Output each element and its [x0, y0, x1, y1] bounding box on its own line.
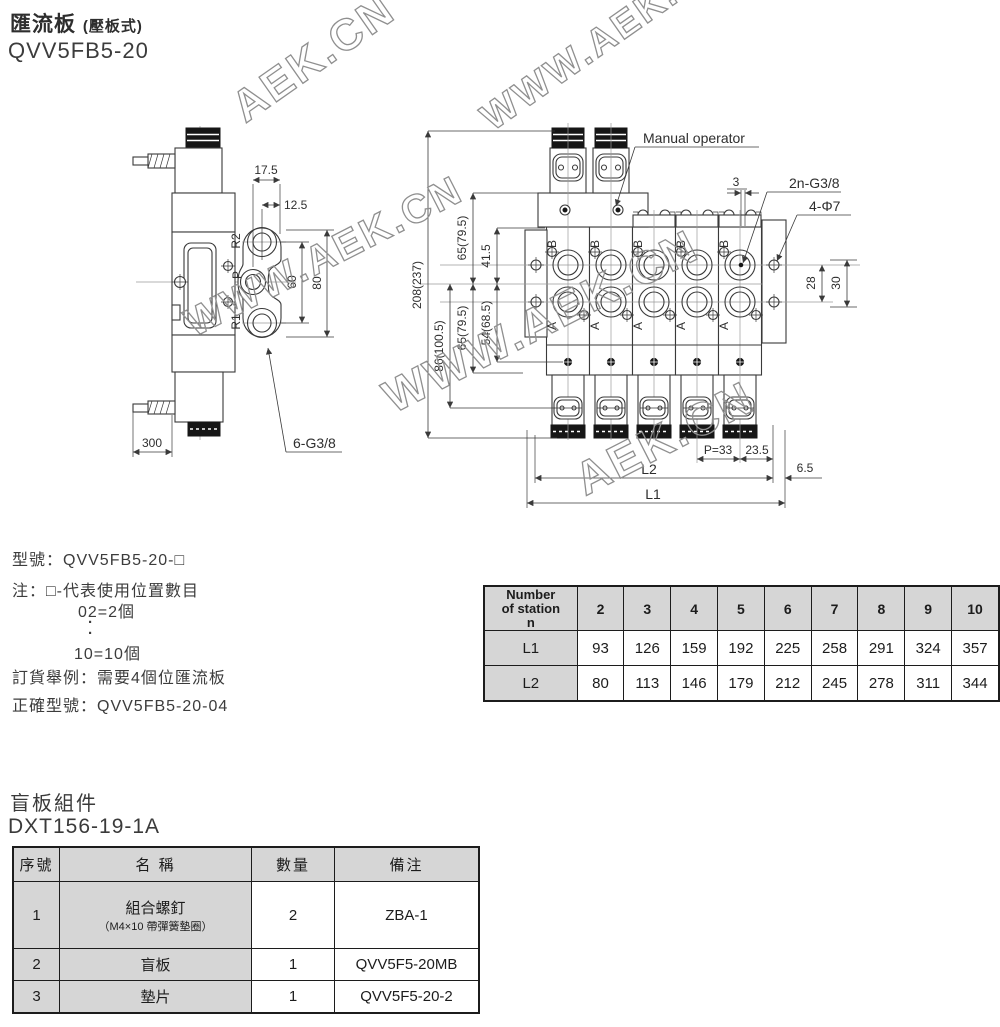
dim-label-300: 300: [142, 436, 162, 450]
pilot-mount-plate: [538, 193, 648, 227]
callout-6g38: 6-G3/8: [293, 435, 336, 451]
page-title: 匯流板 (壓板式): [10, 8, 143, 38]
l1-value: 159: [671, 631, 718, 666]
port-label-a: A: [631, 322, 645, 330]
top-lead-pin: [133, 157, 148, 165]
l2-value: 80: [577, 666, 624, 702]
leader-6g38: [268, 348, 286, 452]
lower-lead-connector: [148, 401, 175, 414]
part-remark: QVV5F5-20MB: [335, 949, 480, 981]
body-slot-outer: [184, 243, 216, 328]
dim-label-23-5: 23.5: [745, 443, 769, 457]
leader-dot: [739, 263, 743, 267]
col-header: 6: [764, 586, 811, 631]
port-label-r2: R2: [229, 233, 243, 249]
row-label: L2: [484, 666, 577, 702]
col-header: 10: [952, 586, 999, 631]
lower-lead-pin: [133, 404, 148, 412]
dim-label-65-top: 65(79.5): [455, 216, 469, 261]
col-header: 4: [671, 586, 718, 631]
datasheet-page: 匯流板 (壓板式) QVV5FB5-20: [0, 0, 1000, 1027]
dim-label-30: 30: [829, 276, 843, 290]
part-name: 組合螺釘 （M4×10 帶彈簧墊圈）: [60, 882, 252, 949]
ellipsis-dot: ·: [88, 628, 93, 639]
dim-label-3: 3: [733, 175, 740, 189]
port-label-a: A: [588, 322, 602, 330]
part-remark: ZBA-1: [335, 882, 480, 949]
dim-label-6-5: 6.5: [797, 461, 814, 475]
model-code-line: 型號：QVV5FB5-20-□: [12, 546, 185, 570]
l2-value: 344: [952, 666, 999, 702]
order-example: 訂貨舉例：需要4個位匯流板: [12, 664, 226, 688]
left-end-plate: [525, 230, 547, 337]
col-header: 3: [624, 586, 671, 631]
l2-value: 245: [811, 666, 858, 702]
col-header: 8: [858, 586, 905, 631]
dim-label-l1: L1: [645, 486, 661, 502]
correct-model: 正確型號：QVV5FB5-20-04: [12, 692, 228, 716]
table-row-l2: L2 80 113 146 179 212 245 278 311 344: [484, 666, 999, 702]
port-label-a: A: [545, 322, 559, 330]
port-label-r1: R1: [229, 314, 243, 330]
manual-operator-screw-dot: [616, 208, 620, 212]
l1-value: 192: [718, 631, 765, 666]
parts-row: 2 盲板 1 QVV5F5-20MB: [13, 949, 479, 981]
callout-manual-operator: Manual operator: [643, 130, 745, 146]
dim-label-12-5: 12.5: [284, 198, 308, 212]
port-label-a: A: [674, 322, 688, 330]
dim-label-28: 28: [804, 276, 818, 290]
part-name: 墊片: [60, 981, 252, 1014]
l1-value: 258: [811, 631, 858, 666]
parts-row: 1 組合螺釘 （M4×10 帶彈簧墊圈） 2 ZBA-1: [13, 882, 479, 949]
left-drawing-svg: R2 P R1 17.5 12.5 60 80 300 6-G3/8: [90, 100, 355, 470]
parts-table: 序號 名 稱 數量 備注 1 組合螺釘 （M4×10 帶彈簧墊圈） 2 ZBA-…: [12, 846, 480, 1014]
l1-value: 357: [952, 631, 999, 666]
port-label-a: A: [717, 322, 731, 330]
right-end-plate: [762, 220, 786, 343]
blank-plate-title: 盲板組件: [10, 787, 98, 816]
col-header: 7: [811, 586, 858, 631]
callout-4d7: 4-Φ7: [809, 198, 841, 214]
side-notch: [172, 305, 180, 320]
dim-label-80: 80: [310, 276, 324, 290]
col-header-remark: 備注: [335, 847, 480, 882]
part-qty: 2: [252, 882, 335, 949]
col-header-name: 名 稱: [60, 847, 252, 882]
option-max: 10=10個: [74, 640, 141, 664]
part-name-main: 組合螺釘: [60, 897, 251, 918]
page-title-main: 匯流板: [10, 13, 76, 36]
l1-value: 126: [624, 631, 671, 666]
dim-label-17-5: 17.5: [254, 163, 278, 177]
dim-label-86: 86(100.5): [432, 320, 446, 371]
part-no: 3: [13, 981, 60, 1014]
l2-value: 278: [858, 666, 905, 702]
dim-label-65-bot: 65(79.5): [455, 306, 469, 351]
l1-value: 291: [858, 631, 905, 666]
dim-label-60: 60: [285, 275, 299, 289]
l2-value: 311: [905, 666, 952, 702]
station-table: Number of station n 2 3 4 5 6 7 8 9 10 L…: [483, 585, 1000, 702]
top-lead-connector: [148, 154, 175, 168]
product-model: QVV5FB5-20: [8, 38, 149, 64]
col-header-qty: 數量: [252, 847, 335, 882]
part-name-note: （M4×10 帶彈簧墊圈）: [60, 918, 251, 934]
port-label-p: P: [230, 271, 244, 279]
col-header: 2: [577, 586, 624, 631]
part-qty: 1: [252, 949, 335, 981]
lower-solenoid-body: [175, 372, 223, 422]
option-min: 02=2個: [78, 598, 135, 622]
blank-plate-model: DXT156-19-1A: [8, 815, 160, 839]
right-drawing-svg: B B B B B A A A A A: [405, 95, 870, 515]
l2-value: 146: [671, 666, 718, 702]
part-no: 2: [13, 949, 60, 981]
parts-header-row: 序號 名 稱 數量 備注: [13, 847, 479, 882]
col-header-no: 序號: [13, 847, 60, 882]
header-line: Number: [485, 588, 577, 602]
row-label: L1: [484, 631, 577, 666]
dim-label-41-5: 41.5: [479, 244, 493, 268]
table-row: Number of station n 2 3 4 5 6 7 8 9 10: [484, 586, 999, 631]
header-line: of station: [485, 602, 577, 616]
top-cap: [186, 128, 220, 148]
part-no: 1: [13, 882, 60, 949]
callout-2ng38: 2n-G3/8: [789, 175, 840, 191]
upper-step: [172, 193, 235, 232]
l2-value: 212: [764, 666, 811, 702]
l2-value: 113: [624, 666, 671, 702]
manual-operator-screw-dot: [563, 208, 567, 212]
parts-row: 3 墊片 1 QVV5F5-20-2: [13, 981, 479, 1014]
dim-label-p33: P=33: [704, 443, 733, 457]
lower-step: [172, 335, 235, 372]
col-header: 5: [718, 586, 765, 631]
l1-value: 225: [764, 631, 811, 666]
dim-label-l2: L2: [641, 461, 657, 477]
table-row-l1: L1 93 126 159 192 225 258 291 324 357: [484, 631, 999, 666]
l2-value: 179: [718, 666, 765, 702]
part-remark: QVV5F5-20-2: [335, 981, 480, 1014]
top-solenoid-body: [175, 148, 222, 193]
station-table-header: Number of station n: [484, 586, 577, 631]
part-name: 盲板: [60, 949, 252, 981]
part-qty: 1: [252, 981, 335, 1014]
l1-value: 93: [577, 631, 624, 666]
header-line: n: [485, 616, 577, 630]
l1-value: 324: [905, 631, 952, 666]
dim-label-208: 208(237): [410, 261, 424, 309]
page-title-paren: (壓板式): [83, 18, 143, 35]
dim-label-54: 54(68.5): [479, 301, 493, 346]
port-plate: [238, 228, 281, 337]
col-header: 9: [905, 586, 952, 631]
